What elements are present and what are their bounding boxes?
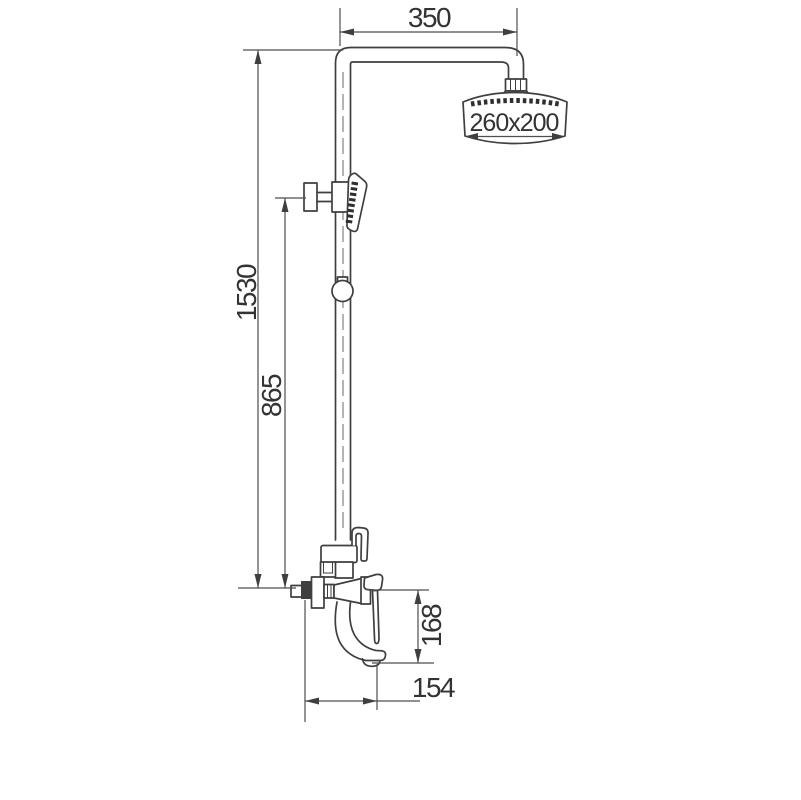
overall-height-label: 1530 (231, 264, 262, 321)
fixture: 260x200 (291, 48, 567, 667)
hand-shower (347, 173, 367, 231)
diverter-column (335, 562, 353, 578)
dim-riser-height: 865 (256, 198, 306, 588)
rain-shower-head: 260x200 (463, 93, 567, 144)
arm-width-label: 350 (408, 2, 451, 33)
mixer-body (334, 574, 383, 643)
diverter-cap (321, 562, 336, 577)
spout-reach-label: 154 (412, 672, 455, 703)
wall-mount (291, 577, 334, 608)
dim-spout-height: 168 (368, 590, 447, 663)
escutcheon (312, 577, 325, 608)
shower-set-technical-drawing: 260x200 (0, 0, 801, 800)
hand-shower-bracket (304, 182, 352, 212)
riser-height-label: 865 (256, 374, 287, 417)
slider-ring (332, 281, 353, 302)
spout-height-label: 168 (416, 604, 447, 647)
wall-nipple (291, 586, 302, 598)
bracket-knob (304, 183, 317, 211)
dim-overall-height: 1530 (231, 50, 343, 588)
diverter-assembly (321, 528, 369, 579)
drawing-canvas: 260x200 (0, 0, 801, 800)
mixer-cone (334, 579, 362, 604)
connector-sleeve (324, 585, 334, 599)
head-size-label: 260x200 (470, 109, 559, 137)
diverter-body (321, 546, 357, 563)
mixer-handle-grip (364, 574, 383, 590)
wall-nut (301, 581, 312, 599)
mixer-handle-blade (373, 591, 380, 644)
spout-outlet (363, 651, 386, 667)
